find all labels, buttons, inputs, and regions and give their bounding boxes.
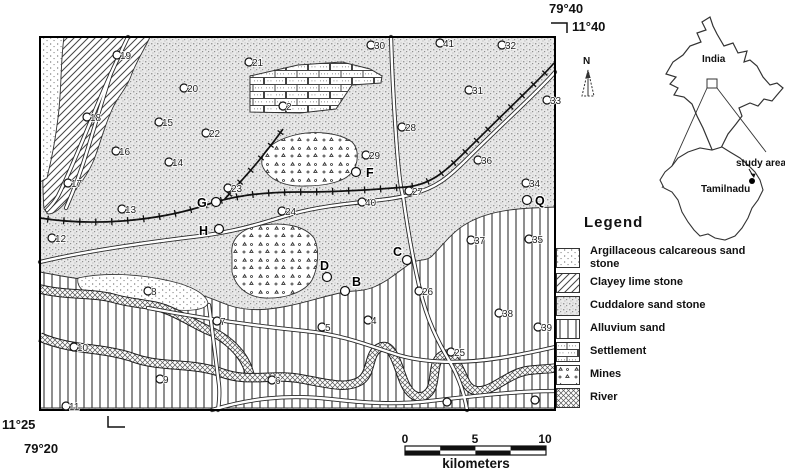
scale-tick-10: 10 (538, 432, 552, 446)
sample-point-label: 36 (481, 156, 493, 167)
north-label: N (583, 56, 590, 67)
coord-bottom-lon: 79°20 (24, 441, 58, 456)
geological-map-figure: 1921304132203133218152822162936141734232… (0, 0, 785, 473)
scale-tick-5: 5 (472, 432, 479, 446)
sample-point-label: 37 (474, 236, 486, 247)
railway-tick (252, 191, 253, 198)
sample-point-label: 13 (125, 205, 137, 216)
sample-point-label: Q (535, 194, 545, 208)
sample-point-label: 31 (472, 86, 484, 97)
india-inset: India study area Tamilnadu (660, 17, 785, 240)
sample-point-label: 29 (369, 151, 381, 162)
sample-point-label: 18 (90, 113, 102, 124)
sample-point-label: 40 (365, 198, 377, 209)
legend-item: Alluvium sand (556, 318, 785, 339)
coord-top-lon: 79°40 (549, 1, 583, 16)
legend-swatch-mines-icon (556, 365, 580, 385)
sample-point-label: 20 (187, 84, 199, 95)
corner-bracket-ne (551, 23, 567, 33)
sample-point-label: 16 (119, 147, 131, 158)
legend-swatch-river-icon (556, 388, 580, 408)
sample-point-H (215, 225, 224, 234)
legend-item: Cuddalore sand stone (556, 295, 785, 316)
sample-point-label: 8 (151, 287, 157, 298)
sample-point-label: 32 (505, 41, 517, 52)
legend-swatch-clayey-icon (556, 273, 580, 293)
sample-point-label: H (199, 224, 208, 238)
sample-point (531, 396, 539, 404)
sample-point-label: 4 (371, 316, 377, 327)
sample-point-label: 41 (443, 39, 455, 50)
scale-bar-graphic (405, 446, 546, 455)
sample-point-label: 2 (286, 102, 292, 113)
sample-point-label: 39 (541, 323, 553, 334)
india-label: India (702, 54, 726, 65)
tamilnadu-label: Tamilnadu (701, 184, 750, 195)
legend-item-label: River (590, 391, 618, 404)
sample-point-label: D (320, 259, 329, 273)
study-area-label: study area (736, 158, 785, 169)
legend-item: Clayey lime stone (556, 272, 785, 293)
north-arrow: N (582, 56, 594, 96)
scale-tick-0: 0 (402, 432, 409, 446)
scale-unit-label: kilometers (442, 456, 510, 471)
sample-point-label: C (393, 245, 402, 259)
sample-point-label: 26 (422, 287, 434, 298)
railway-tick (143, 215, 144, 222)
sample-point-label: 28 (405, 123, 417, 134)
legend-swatch-alluvium-icon (556, 319, 580, 339)
sample-point-label: 17 (71, 179, 83, 190)
sample-point-Q (523, 196, 532, 205)
map-body: 1921304132203133218152822162936141734232… (40, 37, 562, 413)
legend-item-label: Argillaceous calcareous sand stone (590, 245, 755, 270)
coord-top-lat: 11°40 (572, 19, 605, 34)
sample-point-label: 34 (529, 179, 541, 190)
legend-item: Mines (556, 364, 785, 385)
sample-point-label: G (197, 196, 207, 210)
sample-point-label: 7 (220, 317, 226, 328)
legend-item-label: Cuddalore sand stone (590, 299, 706, 312)
legend-item: River (556, 387, 785, 408)
sample-point-label: 30 (374, 41, 386, 52)
sample-point-G (212, 198, 221, 207)
legend-item-label: Mines (590, 368, 621, 381)
legend-swatch-cuddalore-icon (556, 296, 580, 316)
legend-item: Settlement (556, 341, 785, 362)
sample-point-label: 19 (120, 51, 132, 62)
coord-bottom-lat: 11°25 (2, 417, 35, 432)
sample-point-label: 6 (275, 376, 281, 387)
sample-point (443, 398, 451, 406)
sample-point-D (323, 273, 332, 282)
legend-item-label: Clayey lime stone (590, 276, 683, 289)
region-mines-lower (232, 224, 318, 298)
sample-point-label: 38 (502, 309, 514, 320)
sample-point-F (352, 168, 361, 177)
sample-point-B (341, 287, 350, 296)
sample-point-label: 22 (209, 129, 221, 140)
railway-tick (127, 217, 128, 224)
legend-swatch-settlement-icon (556, 342, 580, 362)
sample-point-label: 14 (172, 158, 184, 169)
sample-point-label: 15 (162, 118, 174, 129)
legend-title: Legend (584, 214, 785, 231)
india-outline (666, 17, 783, 157)
sample-point-label: 33 (550, 96, 562, 107)
sample-point-label: B (352, 275, 361, 289)
sample-point-label: 21 (252, 58, 264, 69)
railway-tick (64, 217, 65, 224)
legend-item-label: Settlement (590, 345, 646, 358)
railway-tick (47, 216, 48, 223)
corner-bracket-sw (108, 416, 125, 427)
sample-point-label: 9 (163, 375, 169, 386)
sample-point-label: F (366, 166, 374, 180)
sample-point-label: 5 (325, 323, 331, 334)
sample-point-label: 27 (412, 187, 424, 198)
railway-tick (396, 184, 397, 191)
sample-point-label: 10 (77, 343, 89, 354)
sample-point-label: 35 (532, 235, 544, 246)
sample-point-label: 12 (55, 234, 67, 245)
sample-point-label: 25 (454, 348, 466, 359)
scale-bar: 0 5 10 kilometers (402, 432, 552, 471)
sample-point-label: 23 (231, 184, 243, 195)
legend-item: Argillaceous calcareous sand stone (556, 245, 785, 270)
legend-swatch-argillaceous-icon (556, 248, 580, 268)
legend: Legend Argillaceous calcareous sand ston… (556, 214, 785, 410)
sample-point-label: 11 (69, 402, 80, 413)
legend-item-label: Alluvium sand (590, 322, 665, 335)
sample-point-label: 24 (285, 207, 297, 218)
sample-point-C (403, 256, 412, 265)
